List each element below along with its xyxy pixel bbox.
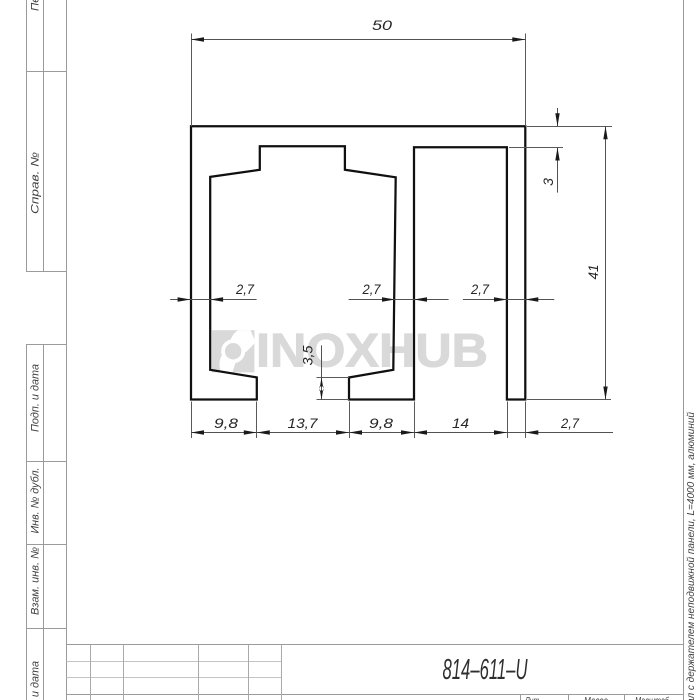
svg-text:3: 3 — [540, 178, 556, 186]
svg-text:Подп. и дата: Подп. и дата — [30, 661, 42, 700]
svg-text:9,8: 9,8 — [369, 415, 393, 431]
svg-text:ал с держателем неподвижной па: ал с держателем неподвижной панели, L=40… — [686, 412, 697, 700]
svg-text:Масштаб: Масштаб — [635, 695, 669, 700]
svg-text:50: 50 — [372, 17, 392, 33]
svg-text:Лит.: Лит. — [524, 696, 541, 700]
svg-text:14: 14 — [452, 415, 469, 431]
svg-text:Инв. № дубл.: Инв. № дубл. — [30, 468, 42, 534]
svg-text:2,7: 2,7 — [362, 281, 382, 297]
svg-text:814–611–U: 814–611–U — [443, 654, 528, 686]
svg-text:3,5: 3,5 — [300, 345, 316, 365]
svg-text:Подп. и дата: Подп. и дата — [30, 364, 42, 432]
svg-text:2,7: 2,7 — [560, 415, 580, 431]
svg-text:2,7: 2,7 — [470, 281, 490, 297]
svg-text:41: 41 — [585, 265, 601, 280]
svg-text:9,8: 9,8 — [214, 415, 238, 431]
svg-text:Масса: Масса — [584, 696, 608, 700]
svg-text:Справ. №: Справ. № — [30, 152, 42, 214]
svg-text:Перв. примен.: Перв. примен. — [30, 0, 42, 11]
svg-text:13,7: 13,7 — [288, 415, 319, 431]
svg-text:2,7: 2,7 — [235, 281, 255, 297]
svg-text:Взам. инв. №: Взам. инв. № — [30, 547, 42, 615]
svg-text:INOXHUB: INOXHUB — [256, 324, 488, 377]
